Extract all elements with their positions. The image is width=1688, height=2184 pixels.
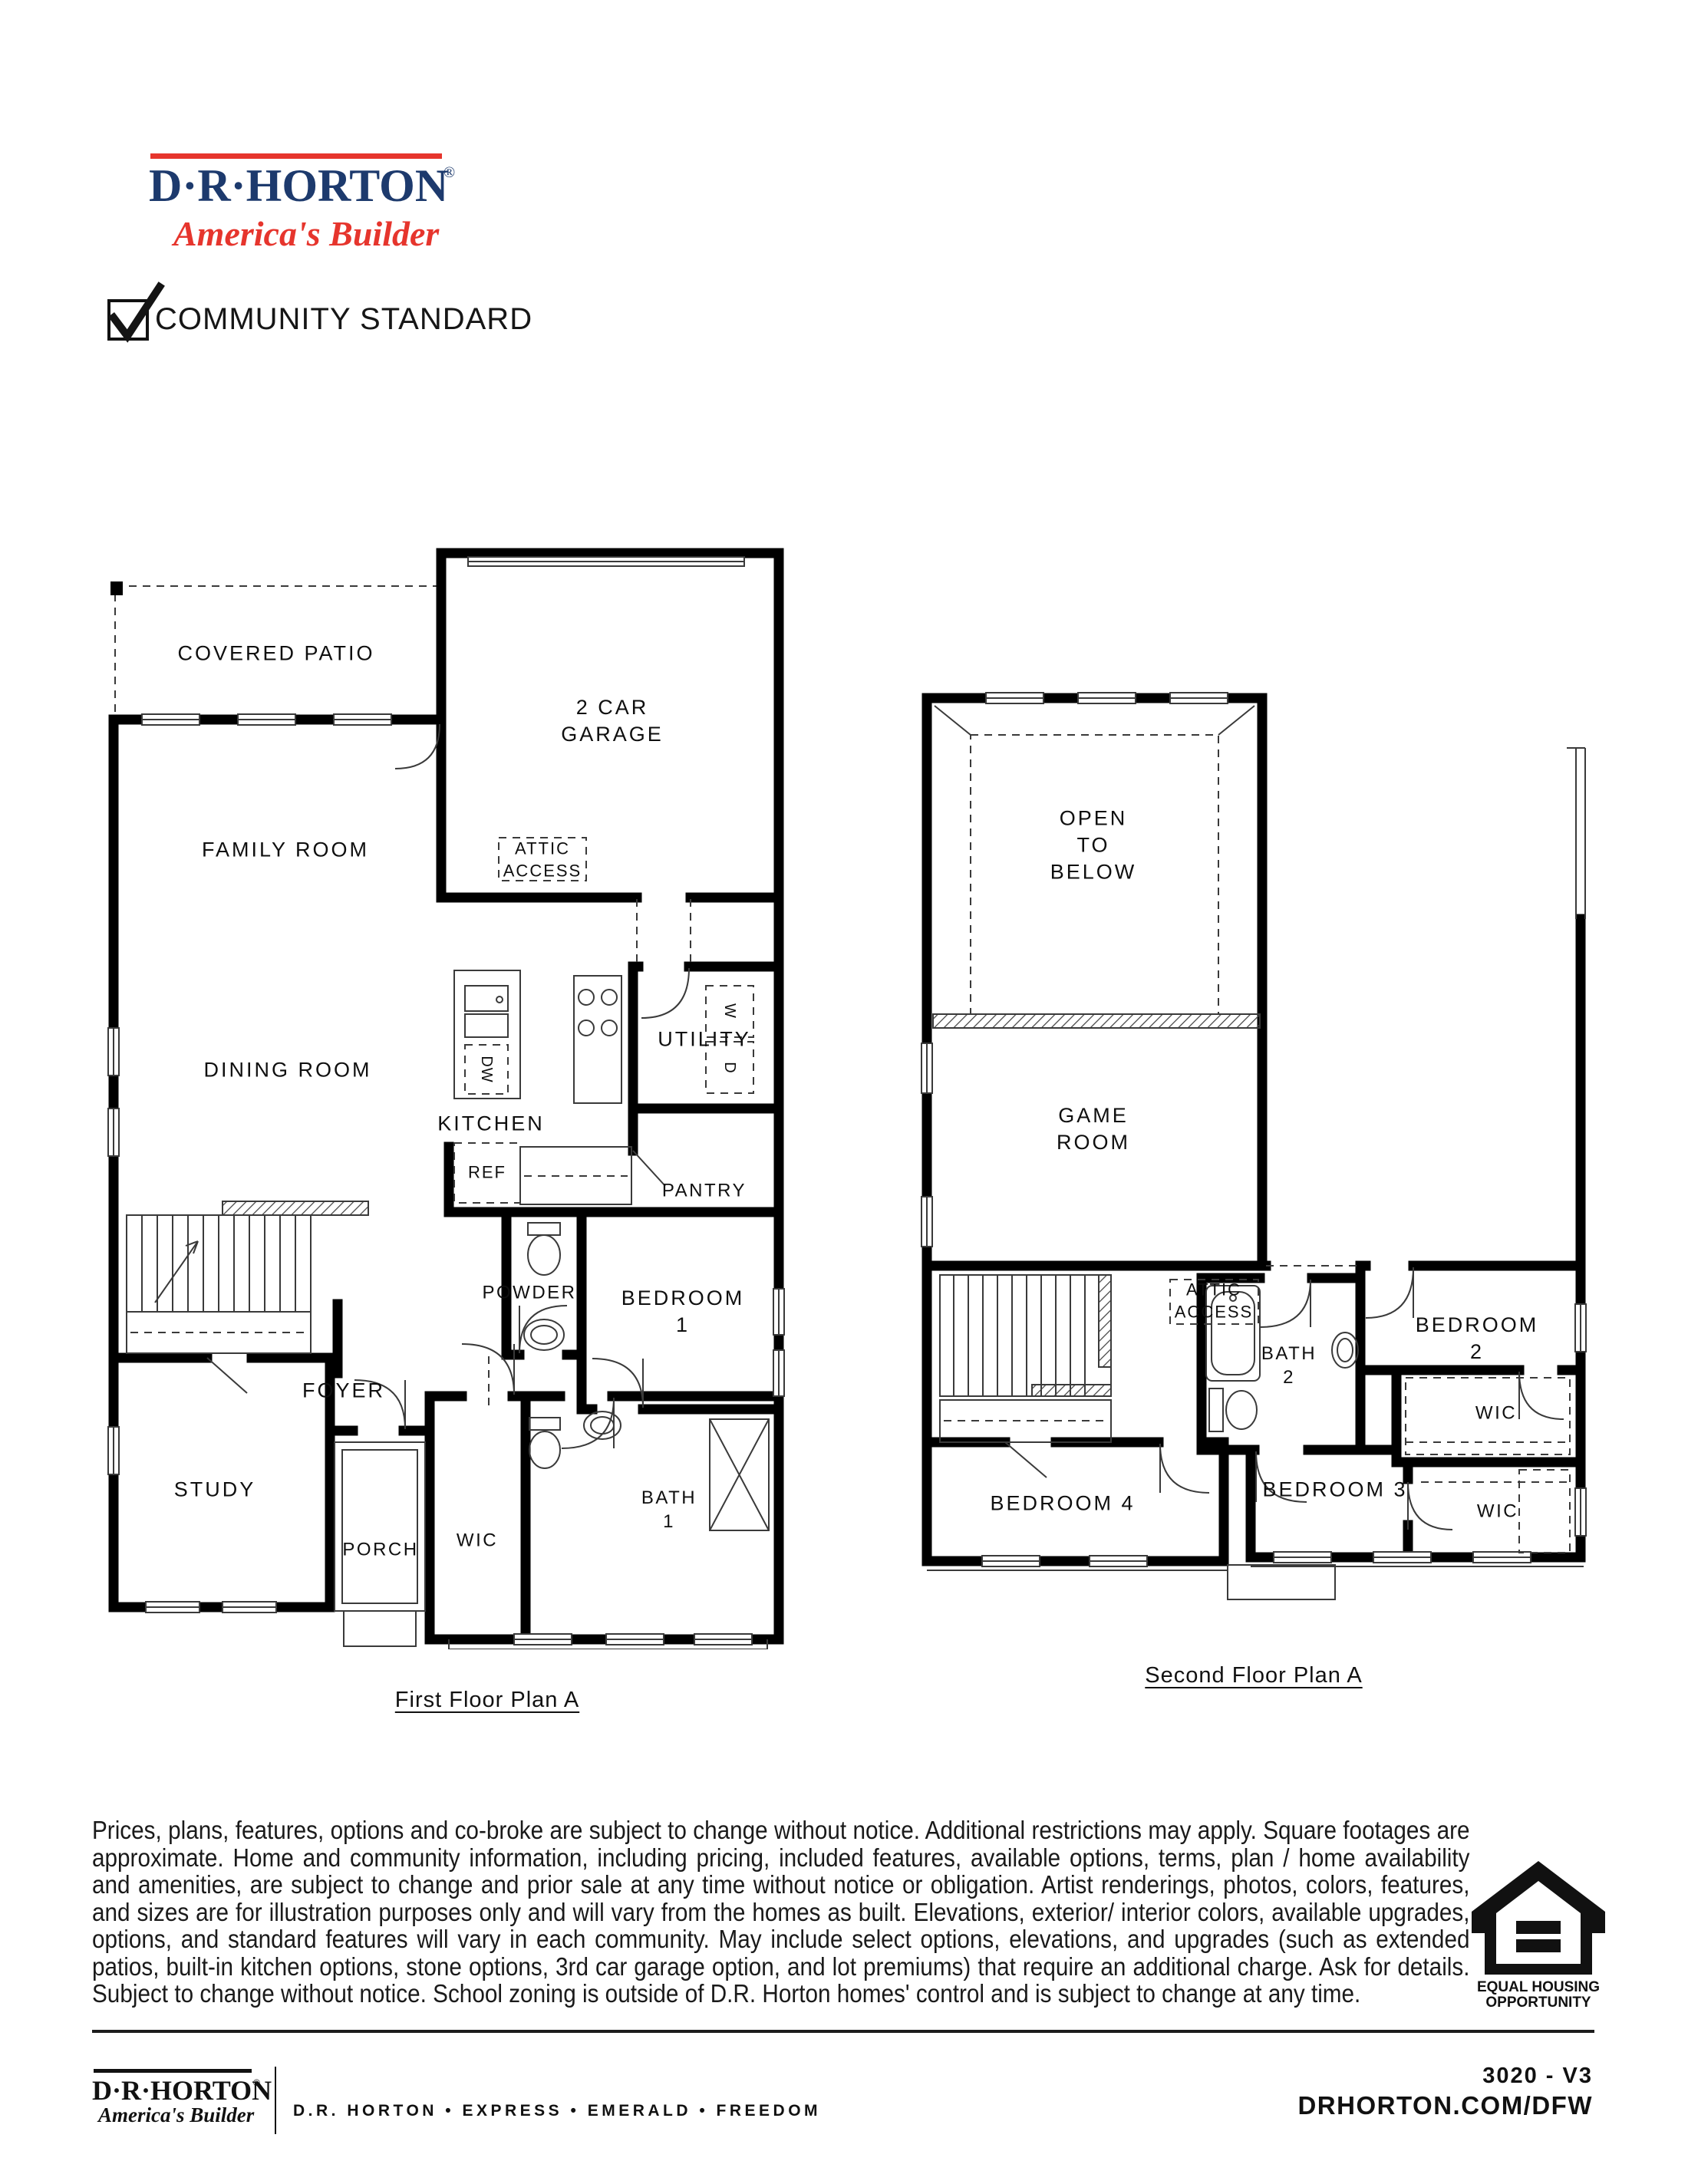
logo-brand: D·R·HORTON: [149, 160, 448, 212]
room-label-porch: PORCH: [342, 1537, 418, 1561]
footer-plan-code: 3020 - V3: [1482, 2064, 1593, 2089]
first-floor-plan: COVERED PATIO 2 CAR GARAGE ATTIC ACCESS …: [100, 537, 790, 1649]
room-label-covered-patio: COVERED PATIO: [177, 640, 374, 667]
footer-logo-brand: D·R·HORTON: [92, 2074, 272, 2107]
room-label-kitchen: KITCHEN: [437, 1110, 545, 1137]
room-label-bedroom-1: BEDROOM 1: [621, 1285, 745, 1339]
room-label-bath-2: BATH 2: [1261, 1342, 1317, 1389]
footer-website: DRHORTON.COM/DFW: [1297, 2091, 1593, 2120]
logo-tagline: America's Builder: [173, 213, 439, 254]
footer-vertical-divider: [275, 2067, 276, 2134]
room-label-wic: WIC: [457, 1528, 498, 1552]
garage-door: [468, 557, 744, 566]
equal-housing-logo: EQUAL HOUSING OPPORTUNITY: [1467, 1858, 1610, 2011]
room-label-family-room: FAMILY ROOM: [202, 836, 369, 863]
community-standard-checkbox[interactable]: [107, 299, 149, 341]
room-label-game-room: GAME ROOM: [1057, 1102, 1130, 1156]
room-label-bath-1: BATH 1: [641, 1486, 697, 1533]
second-floor-plan: OPEN TO BELOW GAME ROOM ATTIC ACCESS BAT…: [905, 675, 1611, 1688]
footer-logo-registered: ®: [253, 2077, 260, 2088]
under-stair-closet: [127, 1312, 311, 1393]
staircase: [127, 1201, 368, 1312]
doors: [354, 724, 691, 1448]
step-outlines: [927, 1565, 1584, 1599]
room-label-dryer: D: [720, 1062, 740, 1073]
room-label-powder: POWDER: [483, 1280, 577, 1304]
pantry-counter: [520, 1147, 665, 1204]
room-label-bedroom-3: BEDROOM 3: [1262, 1476, 1407, 1503]
room-label-attic-access-2: ATTIC ACCESS: [1175, 1279, 1253, 1323]
walls: [927, 698, 1581, 1561]
footer-divider: [92, 2030, 1594, 2033]
windows: [921, 693, 1586, 1566]
community-standard-label: COMMUNITY STANDARD: [155, 302, 532, 337]
second-floor-caption: Second Floor Plan A: [1093, 1663, 1415, 1688]
room-label-attic-access: ATTIC ACCESS: [503, 838, 582, 881]
footer-logo-bar: [94, 2069, 252, 2073]
room-label-utility: UTILITY: [658, 1026, 751, 1052]
footer-logo-tagline: America's Builder: [98, 2103, 254, 2127]
logo-registered-mark: ®: [443, 164, 455, 182]
equal-housing-line1: EQUAL HOUSING: [1477, 1979, 1600, 1995]
equal-housing-house-icon: [1472, 1861, 1605, 1975]
room-label-wic-upper: WIC: [1475, 1401, 1517, 1425]
right-window-wall: [1567, 748, 1585, 919]
room-label-pantry: PANTRY: [662, 1178, 747, 1202]
footer-brands: D.R. HORTON • EXPRESS • EMERALD • FREEDO…: [293, 2102, 821, 2120]
disclaimer-text: Prices, plans, features, options and co-…: [92, 1817, 1470, 2008]
room-label-washer: W: [720, 1003, 740, 1019]
room-label-garage: 2 CAR GARAGE: [523, 694, 701, 748]
room-label-study: STUDY: [174, 1476, 256, 1503]
stove: [574, 976, 621, 1103]
second-floor-plan-drawing: [905, 675, 1611, 1688]
room-label-bedroom-4: BEDROOM 4: [990, 1490, 1135, 1517]
room-label-wic-lower: WIC: [1477, 1499, 1518, 1523]
first-floor-caption: First Floor Plan A: [326, 1688, 648, 1713]
room-label-dishwasher: DW: [476, 1056, 496, 1082]
room-label-open-to-below: OPEN TO BELOW: [1050, 805, 1137, 885]
staircase: [940, 1275, 1111, 1396]
flyer-page: D·R·HORTON ® America's Builder COMMUNITY…: [0, 0, 1688, 2184]
room-label-dining-room: DINING ROOM: [204, 1056, 372, 1083]
room-label-foyer: FOYER: [302, 1377, 385, 1404]
room-label-refrigerator: REF: [468, 1162, 506, 1184]
equal-housing-line2: OPPORTUNITY: [1485, 1995, 1591, 2011]
room-label-bedroom-2: BEDROOM 2: [1410, 1312, 1545, 1365]
logo-red-rule: [150, 153, 442, 159]
